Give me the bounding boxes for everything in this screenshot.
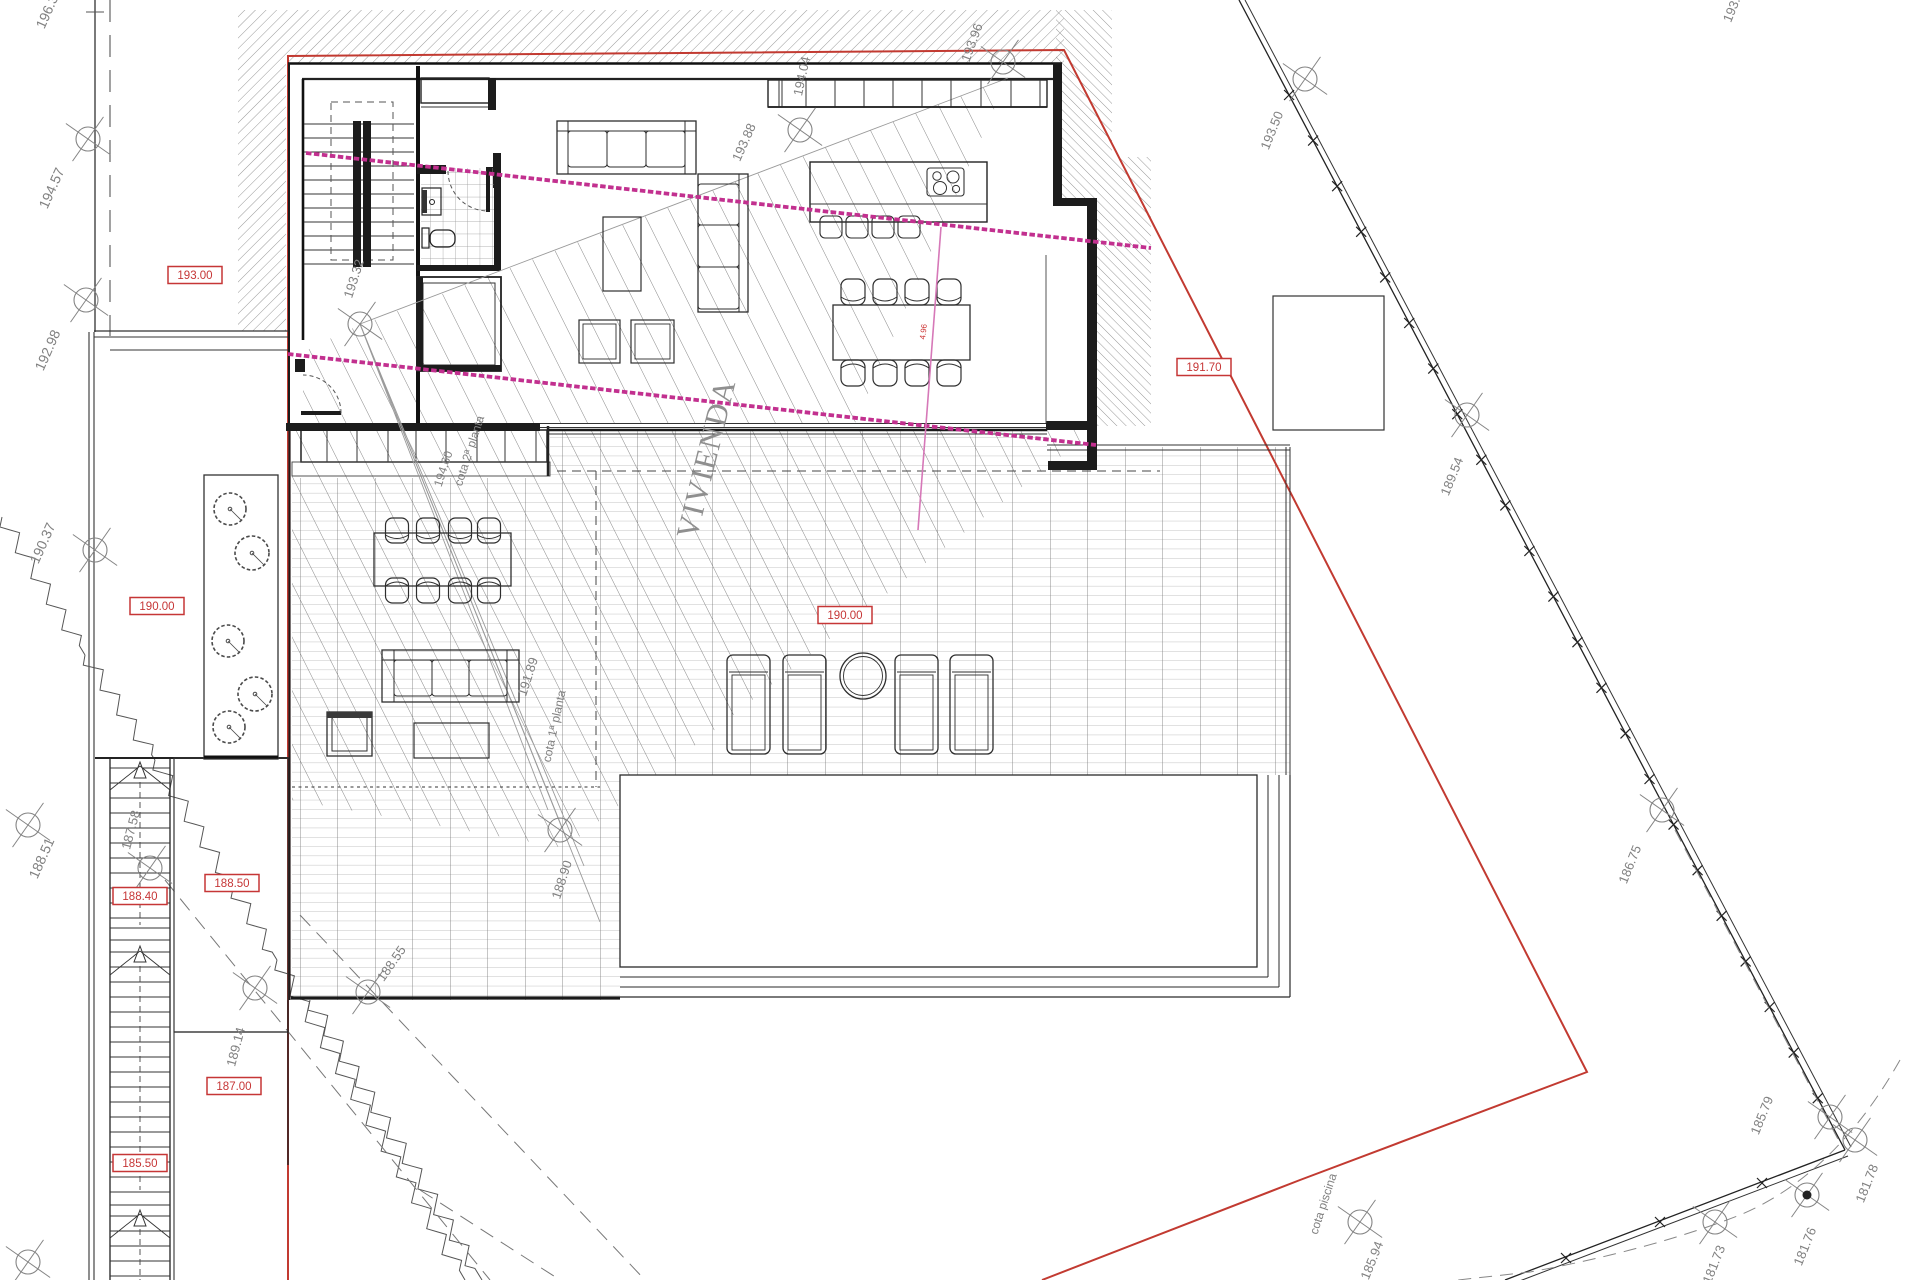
svg-text:190.00: 190.00 bbox=[139, 601, 174, 613]
svg-text:187.00: 187.00 bbox=[216, 1081, 251, 1093]
svg-text:191.70: 191.70 bbox=[1186, 362, 1221, 374]
svg-text:185.50: 185.50 bbox=[122, 1158, 157, 1170]
svg-text:193.00: 193.00 bbox=[177, 270, 212, 282]
svg-text:190.00: 190.00 bbox=[827, 610, 862, 622]
svg-text:188.50: 188.50 bbox=[214, 878, 249, 890]
svg-text:188.40: 188.40 bbox=[122, 891, 157, 903]
